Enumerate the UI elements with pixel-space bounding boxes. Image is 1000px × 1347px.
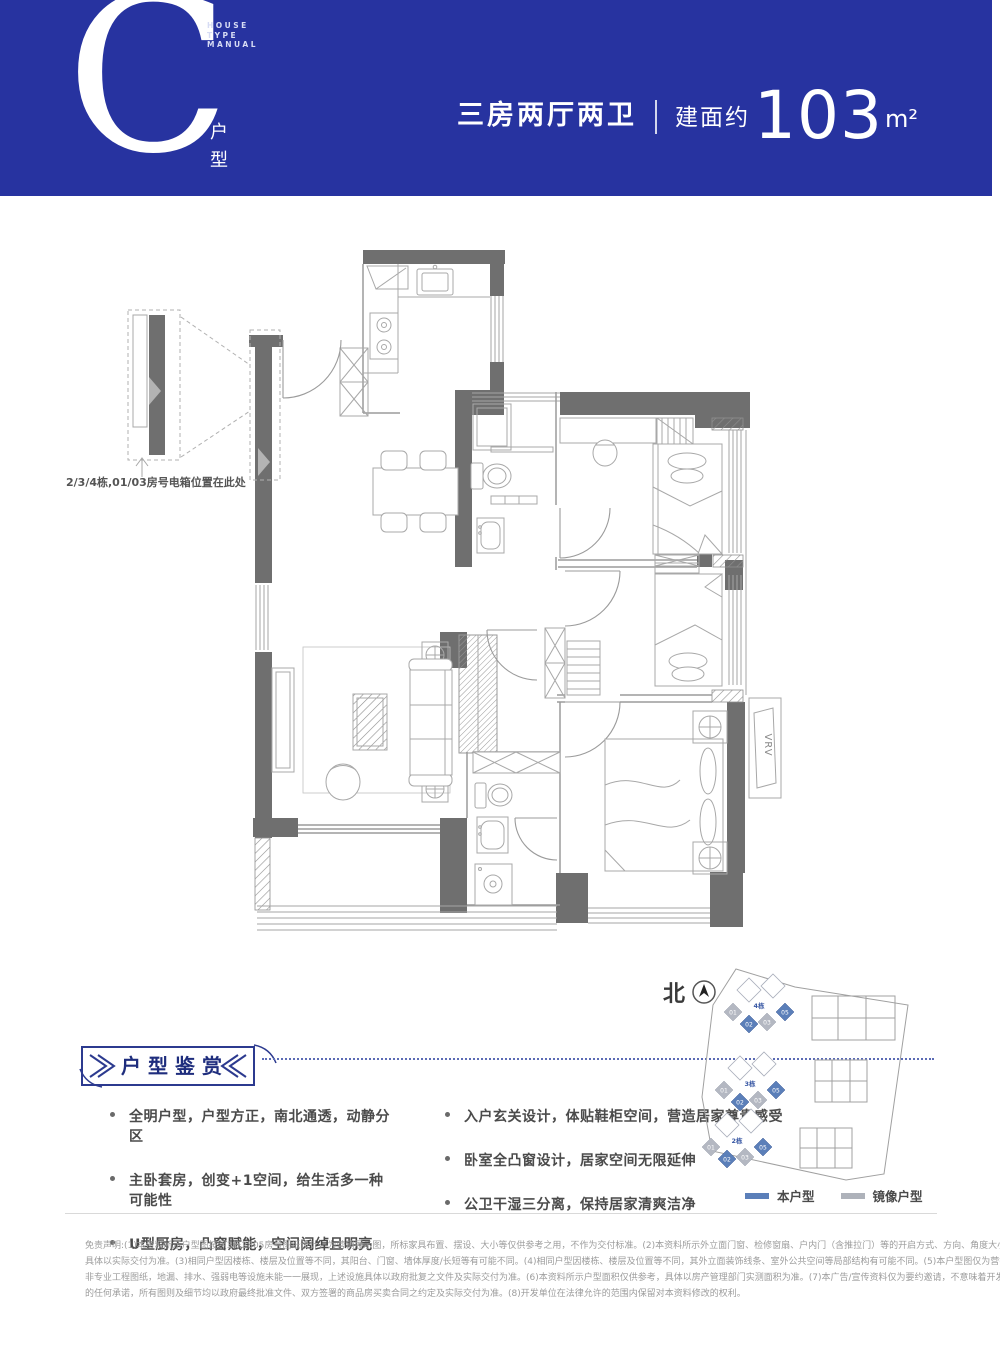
shoe-cabinet: [459, 635, 497, 753]
bullet-dot-icon: [110, 1176, 115, 1181]
disclaimer-line: 非专业工程图纸，地漏、排水、强弱电等设施未能一一展现，上述设施具体以政府批复之文…: [85, 1270, 925, 1286]
site-buildings: [800, 996, 895, 1168]
svg-text:02: 02: [736, 1100, 744, 1107]
svg-text:05: 05: [759, 1145, 767, 1152]
balcony-sliding-door: [298, 825, 440, 833]
area-number: 103: [754, 86, 883, 147]
svg-text:05: 05: [781, 1010, 789, 1017]
building-cluster: 01 02 03 05 4栋: [724, 974, 794, 1033]
svg-text:03: 03: [763, 1020, 771, 1027]
electrical-box-label: 2/3/4栋,01/03房号电箱位置在此处: [66, 474, 246, 490]
svg-text:01: 01: [720, 1088, 728, 1095]
disclaimer-line: 具体以实际交付为准。(3)相同户型因楼栋、楼层及位置等不同，其阳台、门窗、墙体厚…: [85, 1254, 925, 1270]
bathroom-top: [471, 404, 553, 553]
building-cluster: 01 02 03 05 2栋: [702, 1109, 772, 1168]
svg-text:05: 05: [772, 1088, 780, 1095]
svg-text:4栋: 4栋: [753, 1001, 765, 1010]
footer-divider: [65, 1213, 937, 1214]
legend-item-mirror: 镜像户型: [841, 1186, 923, 1205]
unit-spec-row: 三房两厅两卫 建面约 103 m²: [457, 86, 918, 147]
svg-text:03: 03: [741, 1155, 749, 1162]
disclaimer-line: 的任何承诺，所有图则及细节均以政府最终批准文件、双方签署的商品房买卖合同之约定及…: [85, 1286, 925, 1302]
banner: C HOUSE TYPE MANUAL 户型 三房两厅两卫 建面约 103 m²: [0, 0, 992, 196]
site-legend: 本户型 镜像户型: [745, 1186, 923, 1205]
svg-text:03: 03: [754, 1098, 762, 1105]
bullet-dot-icon: [110, 1112, 115, 1117]
svg-text:02: 02: [745, 1022, 753, 1029]
spec-divider: [655, 100, 657, 134]
legend-item-self: 本户型: [745, 1186, 815, 1205]
building-cluster: 01 02 03 05 3栋: [715, 1052, 785, 1111]
page: C HOUSE TYPE MANUAL 户型 三房两厅两卫 建面约 103 m²: [0, 0, 1000, 1347]
svg-text:2栋: 2栋: [731, 1136, 743, 1145]
vrv-label: VRV: [762, 733, 773, 756]
disclaimer-line: 免责声明:(1)本资料所示户型图按照3栋2805房号图纸设计，为营销展示图，所标…: [85, 1238, 925, 1254]
svg-text:01: 01: [729, 1010, 737, 1017]
feature-item: 全明户型，户型方正，南北通透，动静分区: [110, 1106, 390, 1146]
feature-item: 主卧套房，创变+1空间，给生活多一种可能性: [110, 1170, 390, 1210]
svg-text:02: 02: [723, 1157, 731, 1164]
floor-plan-drawing: VRV: [60, 225, 940, 970]
disclaimer: 免责声明:(1)本资料所示户型图按照3栋2805房号图纸设计，为营销展示图，所标…: [85, 1238, 925, 1302]
kitchen: [363, 264, 490, 373]
bullet-dot-icon: [445, 1112, 450, 1117]
bullet-dot-icon: [445, 1156, 450, 1161]
house-type-manual-label: HOUSE TYPE MANUAL: [207, 21, 258, 50]
section-title: 户型鉴赏: [110, 1050, 240, 1079]
living-room: [272, 642, 452, 802]
legend-swatch-mirror: [841, 1193, 865, 1199]
site-plan: 01 02 03 05 4栋 01 02 03 05 3栋 01 02 03 0…: [660, 960, 990, 1210]
svg-text:01: 01: [707, 1145, 715, 1152]
svg-text:3栋: 3栋: [744, 1079, 756, 1088]
vrv-unit: VRV: [749, 698, 781, 798]
dining-area: [373, 451, 458, 532]
unit-type-label: 户型: [204, 122, 230, 178]
legend-swatch-self: [745, 1193, 769, 1199]
bedroom-middle-right: [567, 563, 722, 695]
bullet-dot-icon: [445, 1200, 450, 1205]
area-unit: m²: [885, 105, 918, 133]
room-spec: 三房两厅两卫: [457, 93, 637, 132]
ceiling-unit-icon: [693, 711, 727, 743]
bedroom-top-right: [560, 418, 722, 566]
area-prefix: 建面约: [675, 98, 750, 132]
master-bedroom: [605, 711, 727, 874]
